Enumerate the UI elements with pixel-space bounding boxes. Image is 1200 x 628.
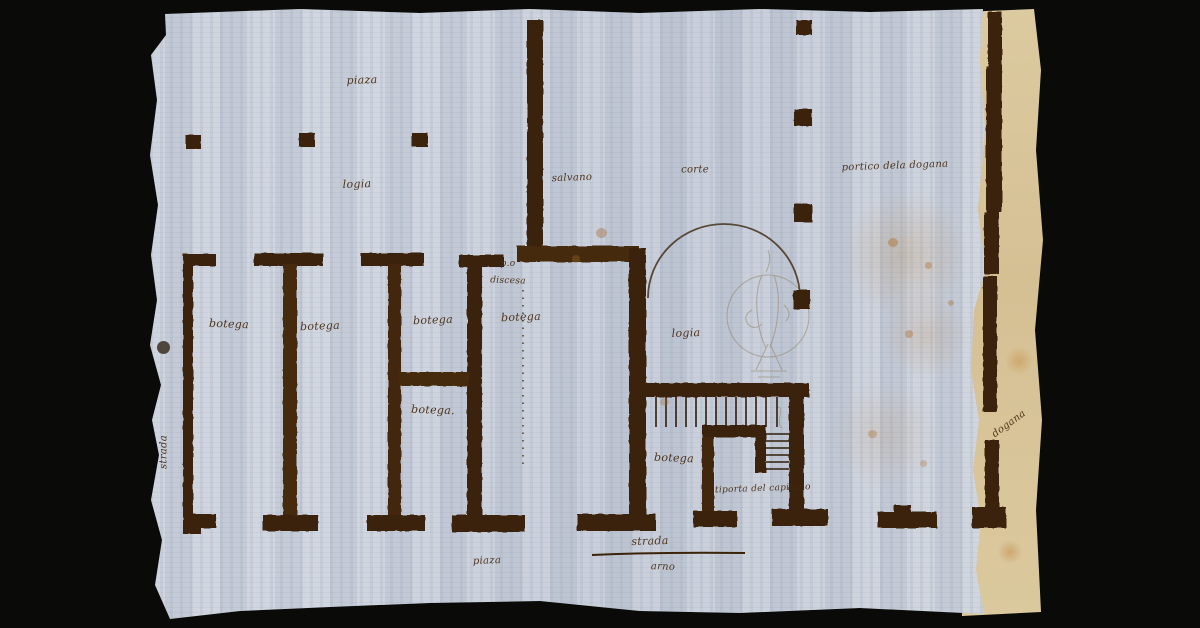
inner-wall-footing xyxy=(693,511,737,527)
stair-treads-top xyxy=(656,397,777,427)
label-botega-3: botega xyxy=(413,313,453,327)
label-botega-2: botega xyxy=(300,319,340,333)
inner-wall-vertical xyxy=(702,437,714,513)
pier2-stem xyxy=(388,264,401,516)
wall-court-top xyxy=(517,246,639,262)
right-strip-seg3 xyxy=(984,212,999,274)
label-salvano: salvano xyxy=(552,172,593,184)
label-botega-4: botega xyxy=(501,310,541,324)
wall-left-bottom-flange xyxy=(183,514,216,528)
column-dot xyxy=(794,204,812,222)
label-strada-left: strada xyxy=(159,435,170,469)
label-botega-6: botega xyxy=(654,451,694,465)
wall-top-vertical xyxy=(527,20,543,252)
pier3-stem xyxy=(467,264,482,516)
label-corte: corte xyxy=(681,165,709,176)
column-dot xyxy=(299,133,315,147)
label-arno: arno xyxy=(651,561,676,573)
right-strip-footing xyxy=(972,507,1006,528)
label-loggia-top: logia xyxy=(342,177,371,191)
scanned-plan-page: piaza logia salvano corte portico dela d… xyxy=(0,0,1200,628)
label-piazza-bottom: piaza xyxy=(473,555,502,567)
wall-center-vertical xyxy=(629,248,646,516)
stair-treads-side xyxy=(766,434,789,469)
right-strip-seg1 xyxy=(988,12,1002,68)
floor-plan-drawing xyxy=(0,0,1200,628)
label-botega-1: botega xyxy=(209,317,249,331)
ink-walls xyxy=(183,12,1006,534)
label-pio: p.o xyxy=(501,259,516,269)
pier1-foot xyxy=(263,515,318,531)
label-botega-5: botega. xyxy=(411,403,455,418)
footing-stub xyxy=(894,505,911,513)
column-dot xyxy=(793,290,810,309)
street-line xyxy=(592,553,745,555)
column-dot xyxy=(186,135,201,149)
wall-left-foot xyxy=(183,528,201,534)
stair-right-footing xyxy=(772,509,828,526)
wall-center-footing xyxy=(577,514,656,531)
label-strada-bottom: strada xyxy=(631,534,669,548)
footing-right xyxy=(878,512,937,528)
label-piazza-top: piaza xyxy=(346,73,377,87)
column-dot xyxy=(794,109,812,126)
right-strip-seg4 xyxy=(983,276,997,412)
column-dot xyxy=(796,20,812,35)
crossbar-wall xyxy=(399,372,469,386)
stair-top-wall xyxy=(646,383,809,397)
label-loggia-mid: logia xyxy=(671,326,700,340)
inner-wall-stub xyxy=(755,437,766,473)
pier2-foot xyxy=(367,515,425,531)
pier3-foot xyxy=(452,515,525,532)
pier1-stem xyxy=(283,264,297,516)
right-strip-seg5 xyxy=(985,440,999,510)
column-dot xyxy=(412,133,428,147)
right-strip-seg2 xyxy=(986,66,1002,212)
label-discesa: discesa xyxy=(490,275,526,286)
wall-left-vertical xyxy=(183,258,193,520)
